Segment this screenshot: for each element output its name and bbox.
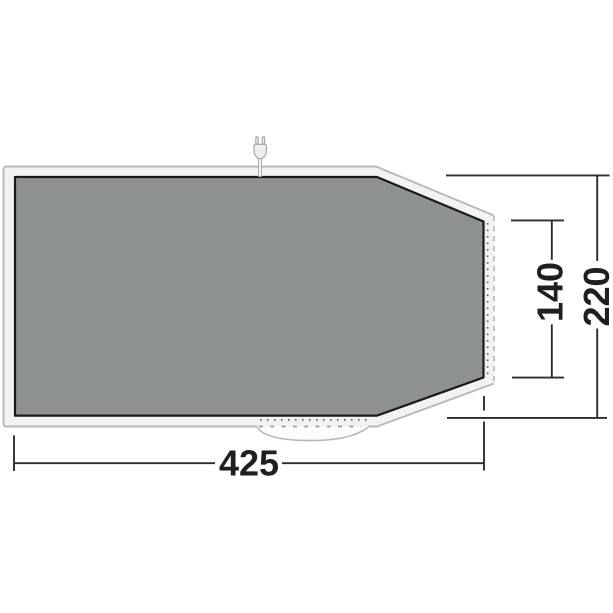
svg-text:220: 220 <box>576 266 613 326</box>
svg-text:425: 425 <box>219 443 279 484</box>
svg-text:140: 140 <box>529 262 570 322</box>
